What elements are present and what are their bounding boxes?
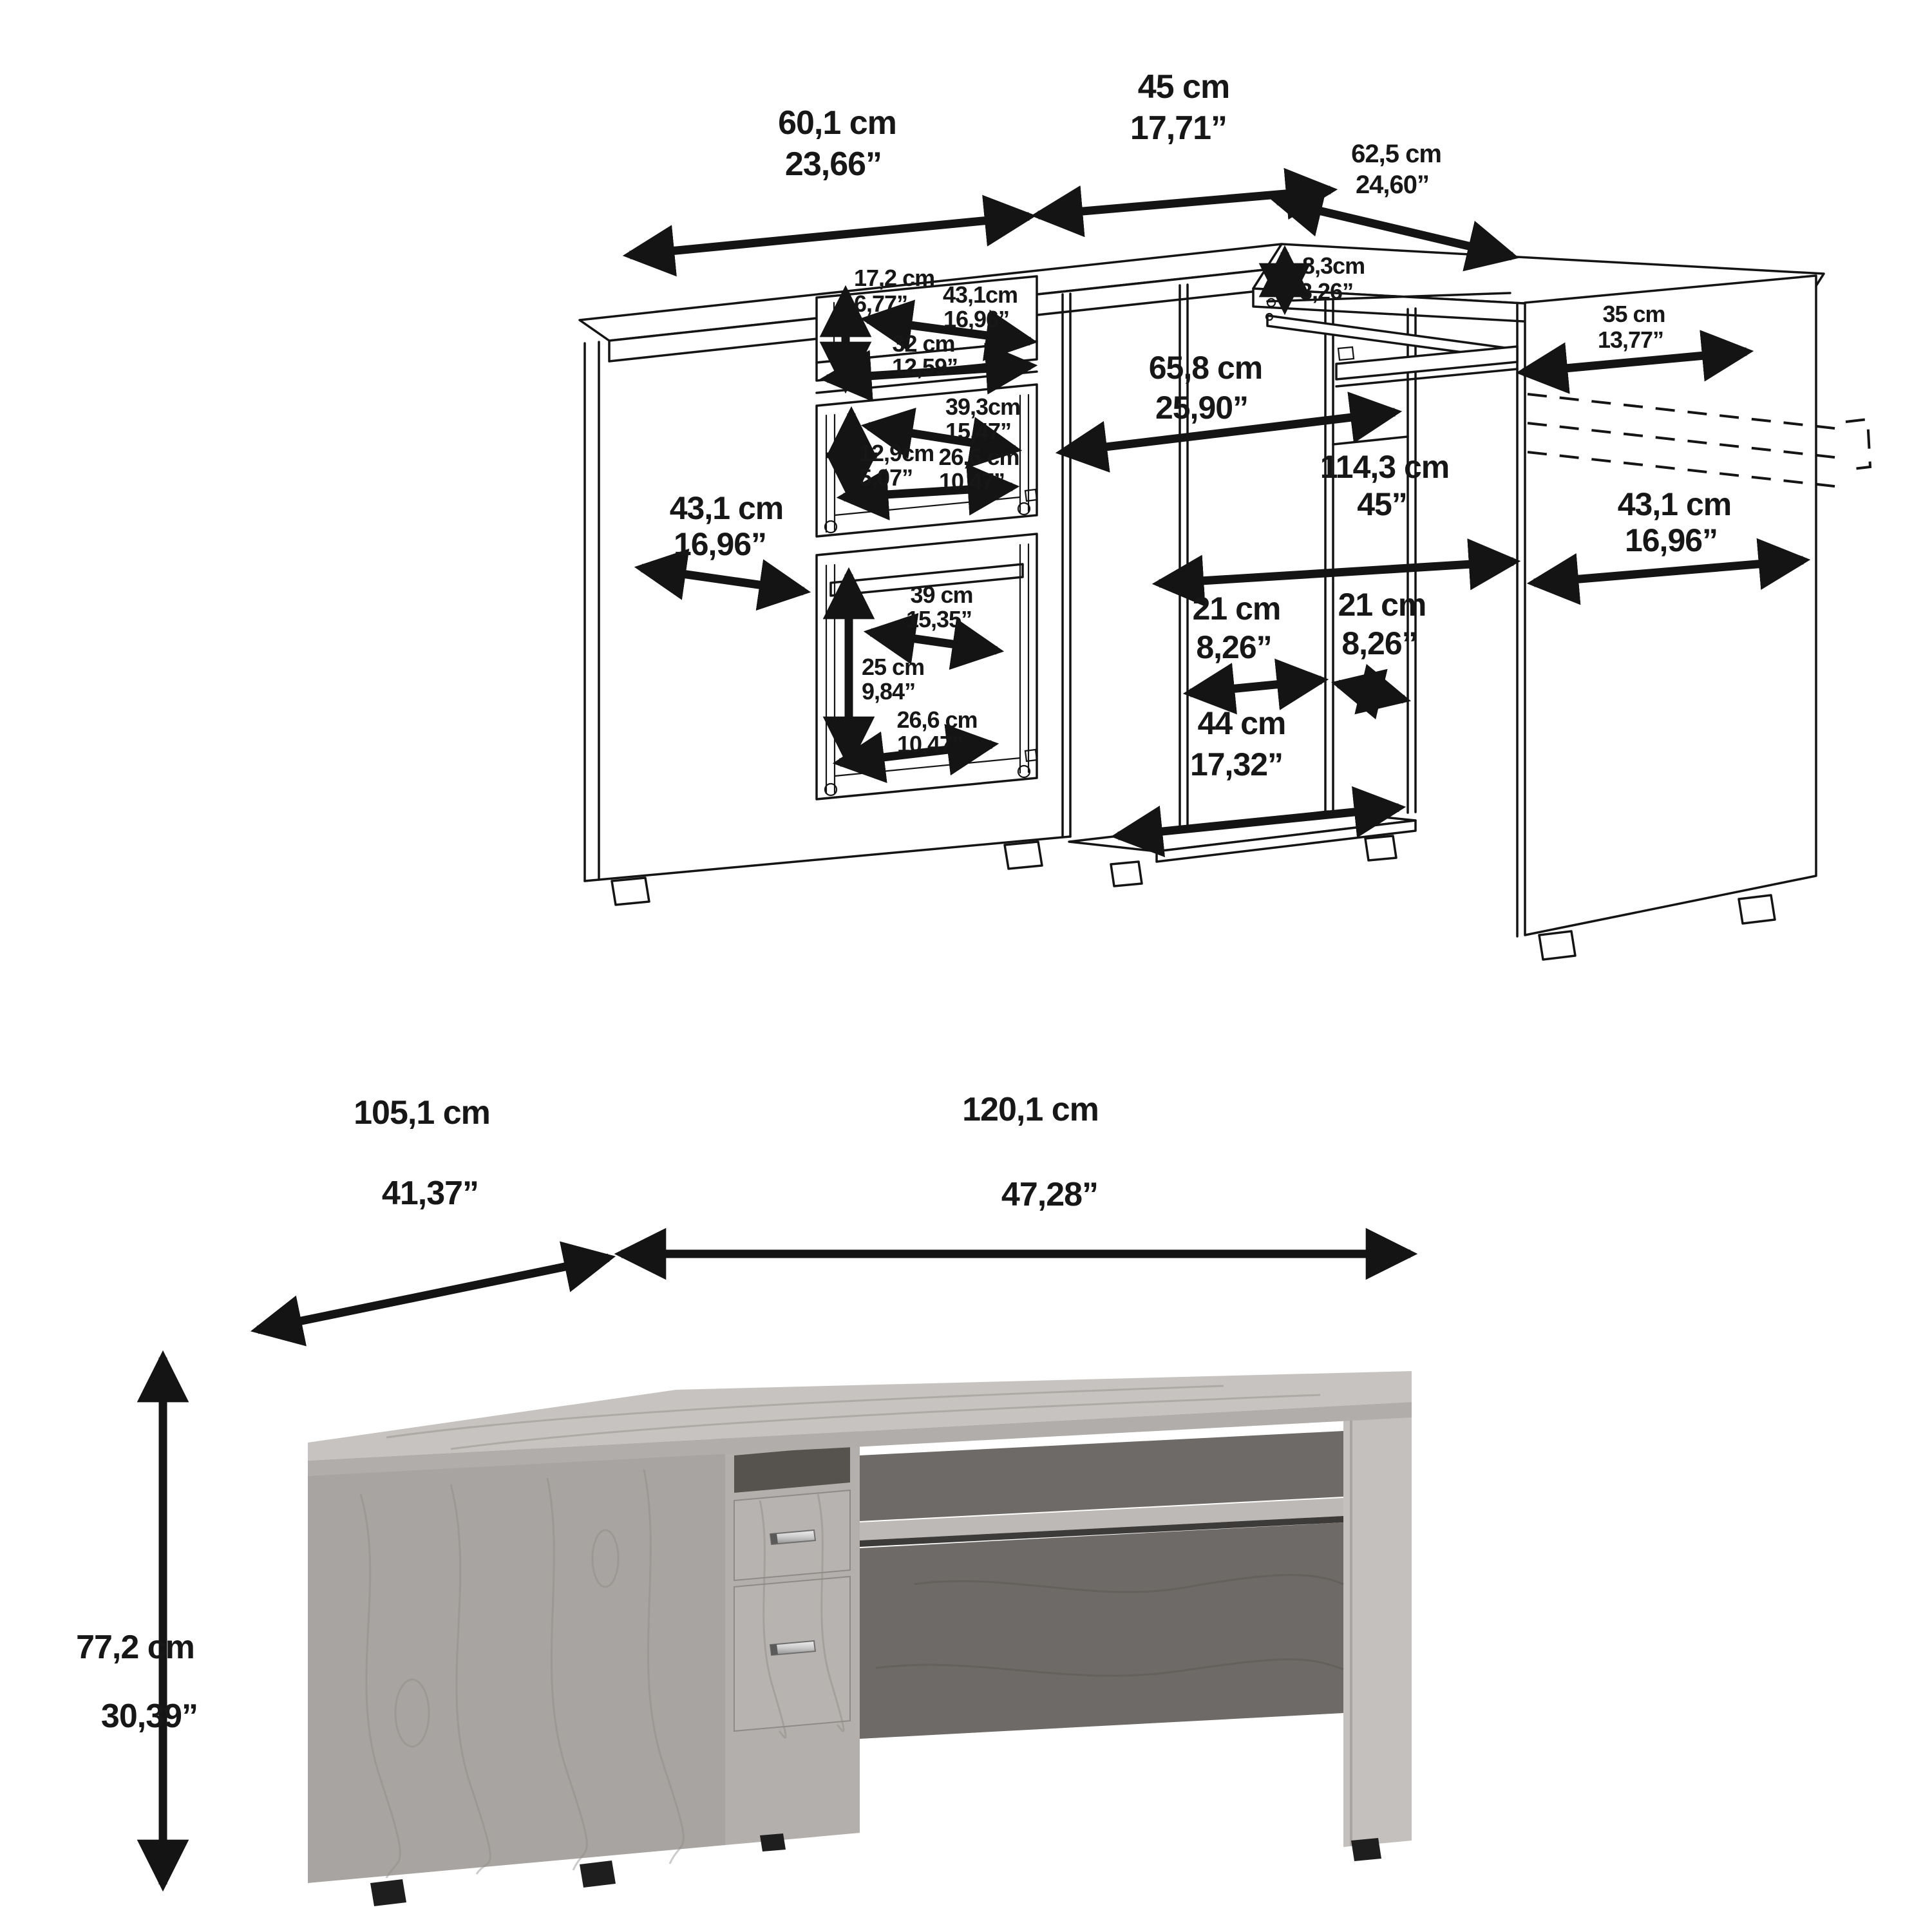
label-corner-width-cm: 45 cm	[1138, 68, 1229, 106]
pedestal-foot-right	[580, 1861, 616, 1888]
label-tray-clearance-in: 3,26”	[1300, 278, 1353, 305]
label-bottom-drawer-depth-in: 10,47”	[897, 731, 963, 757]
cabinet-foot-left	[612, 878, 649, 905]
modesty-panel	[860, 1522, 1343, 1739]
label-mid-drawer-depth-cm: 26,6 cm	[938, 444, 1019, 470]
pedestal-side-panel	[308, 1438, 725, 1883]
label-right-side-depth-cm: 43,1 cm	[1618, 486, 1731, 522]
label-bottom-drawer-width-cm: 39 cm	[910, 582, 972, 608]
arrow-overall-width	[1159, 562, 1513, 583]
right-leg-panel	[1343, 1411, 1412, 1847]
label-render-width-cm: 120,1 cm	[962, 1091, 1099, 1128]
label-mid-drawer-height-in: 5,07”	[859, 464, 913, 491]
label-hutch-height-in: 6,77”	[854, 290, 907, 317]
label-corner-width-in: 17,71”	[1130, 109, 1227, 147]
arrow-gap-left	[1190, 680, 1321, 693]
label-bottom-drawer-height-in: 9,84”	[862, 678, 915, 705]
label-hutch-width-back-cm: 43,1cm	[943, 281, 1018, 308]
arrow-gap-right	[1338, 684, 1404, 699]
label-hutch-width-front-cm: 32 cm	[892, 330, 954, 357]
label-base-width-in: 17,32”	[1190, 746, 1283, 782]
label-gap-left-in: 8,26”	[1196, 629, 1271, 665]
arrow-left-top-width	[630, 216, 1029, 255]
label-bottom-drawer-depth-cm: 26,6 cm	[896, 706, 977, 733]
label-hutch-width-front-in: 12,59”	[892, 354, 958, 380]
label-bottom-drawer-width-in: 15,35”	[906, 606, 972, 632]
product-render: 105,1 cm 41,37” 120,1 cm 47,28” 77,2 cm …	[0, 1005, 1932, 1932]
label-gap-left-cm: 21 cm	[1193, 591, 1281, 627]
label-left-side-depth-cm: 43,1 cm	[670, 490, 783, 526]
label-render-depth-cm: 105,1 cm	[354, 1094, 490, 1132]
label-overall-width-cm: 114,3 cm	[1320, 449, 1450, 485]
label-mid-drawer-width-in: 15,47”	[945, 418, 1011, 444]
pedestal-foot-left	[370, 1879, 406, 1906]
label-render-height-cm: 77,2 cm	[76, 1629, 194, 1666]
label-mid-drawer-height-cm: 12,9cm	[859, 440, 934, 466]
column-foot	[760, 1833, 786, 1851]
label-base-width-cm: 44 cm	[1198, 705, 1286, 741]
right-side-panel	[1525, 276, 1816, 935]
label-gap-right-cm: 21 cm	[1338, 587, 1426, 623]
label-left-top-width-in: 23,66”	[785, 146, 882, 183]
label-mid-drawer-width-cm: 39,3cm	[945, 393, 1020, 420]
label-render-height-in: 30,39”	[101, 1698, 198, 1735]
label-left-top-width-cm: 60,1 cm	[778, 104, 896, 142]
cabinet-foot-right	[1005, 842, 1042, 869]
label-bottom-drawer-height-cm: 25 cm	[862, 654, 924, 680]
technical-drawing: 60,1 cm 23,66” 45 cm 17,71” 62,5 cm 24,6…	[0, 0, 1932, 1005]
arrow-left-side-depth	[641, 568, 804, 591]
leg-foot	[1351, 1838, 1381, 1861]
label-render-width-in: 47,28”	[1001, 1176, 1098, 1213]
label-overall-width-in: 45”	[1357, 486, 1407, 522]
label-render-depth-in: 41,37”	[382, 1175, 478, 1212]
label-tray-extension-cm: 35 cm	[1602, 301, 1665, 327]
label-gap-right-in: 8,26”	[1341, 625, 1417, 661]
label-tray-clearance-cm: 8,3cm	[1302, 252, 1365, 279]
label-hutch-height-cm: 17,2 cm	[854, 265, 934, 291]
arrow-render-depth	[258, 1258, 609, 1330]
desk-render	[308, 1371, 1412, 1906]
label-hutch-width-back-in: 16,96”	[943, 306, 1009, 332]
label-tray-extension-in: 13,77”	[1598, 327, 1663, 353]
label-knee-width-cm: 65,8 cm	[1149, 350, 1262, 386]
label-right-side-depth-in: 16,96”	[1625, 522, 1718, 558]
label-left-side-depth-in: 16,96”	[674, 526, 766, 562]
label-right-top-depth-cm: 62,5 cm	[1351, 140, 1441, 168]
label-knee-width-in: 25,90”	[1155, 390, 1248, 426]
label-mid-drawer-depth-in: 10,47”	[939, 468, 1005, 495]
dimension-sheet: 60,1 cm 23,66” 45 cm 17,71” 62,5 cm 24,6…	[0, 0, 1932, 1932]
label-right-top-depth-in: 24,60”	[1356, 171, 1429, 199]
